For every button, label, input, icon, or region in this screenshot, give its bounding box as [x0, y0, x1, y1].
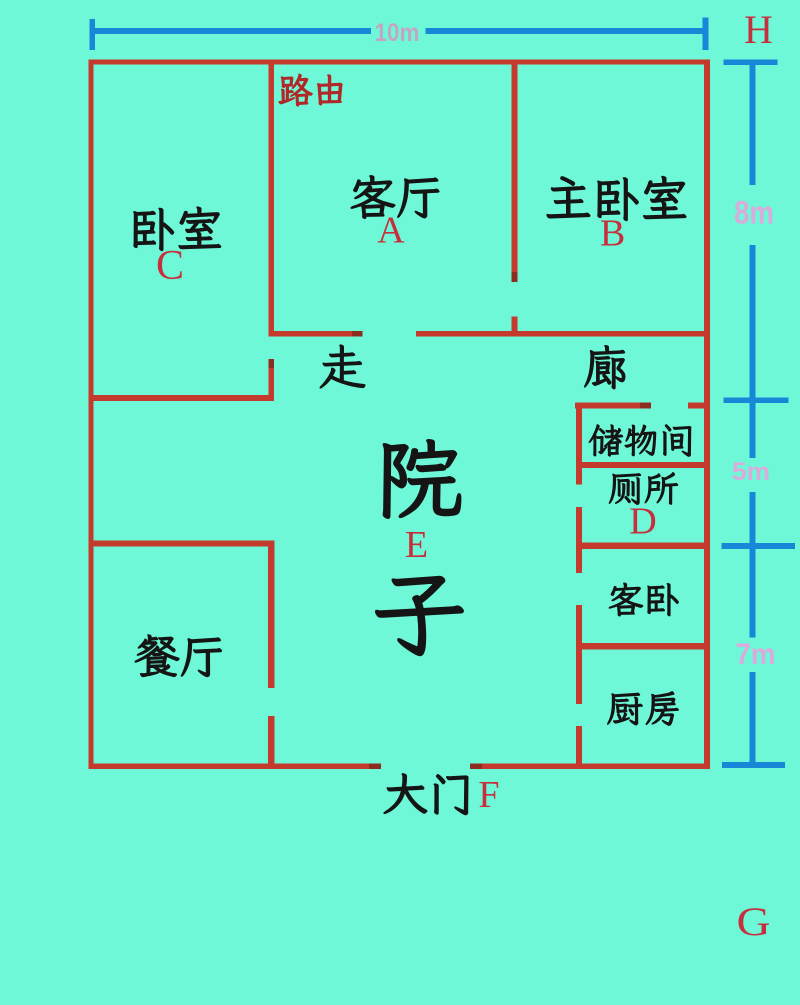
- svg-text:5m: 5m: [732, 458, 770, 486]
- svg-text:7m: 7m: [736, 638, 776, 671]
- svg-text:B: B: [600, 213, 625, 255]
- svg-text:8m: 8m: [734, 195, 774, 231]
- svg-text:10m: 10m: [375, 19, 420, 47]
- svg-text:F: F: [478, 774, 499, 816]
- svg-text:H: H: [744, 7, 773, 52]
- svg-text:C: C: [156, 243, 184, 289]
- svg-text:A: A: [377, 210, 405, 252]
- svg-text:G: G: [737, 899, 771, 944]
- svg-text:D: D: [629, 501, 656, 543]
- svg-text:E: E: [405, 524, 428, 566]
